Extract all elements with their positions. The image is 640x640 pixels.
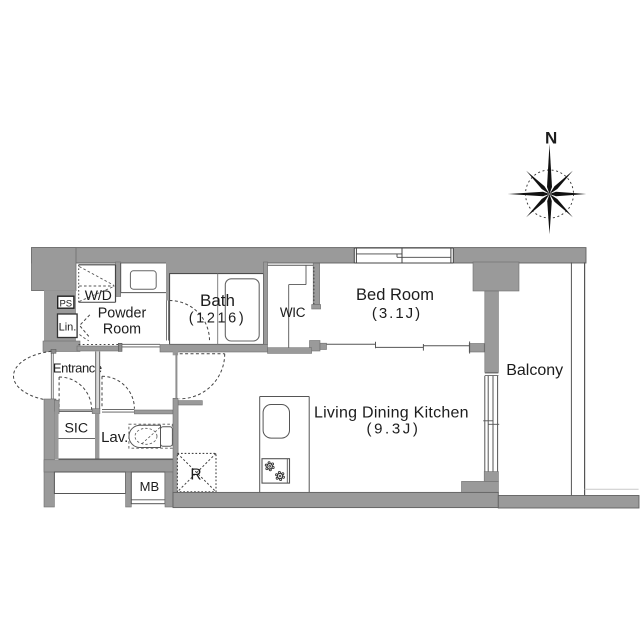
svg-text:Living Dining Kitchen: Living Dining Kitchen (314, 404, 469, 421)
svg-text:W/D: W/D (85, 287, 112, 303)
svg-text:WIC: WIC (280, 305, 306, 320)
svg-text:SIC: SIC (64, 421, 88, 437)
svg-text:Lin.: Lin. (59, 322, 77, 334)
svg-text:PS: PS (59, 298, 72, 309)
svg-text:Entrance: Entrance (53, 360, 102, 375)
svg-text:Bath: Bath (200, 291, 235, 310)
svg-text:Room: Room (103, 322, 141, 338)
svg-text:MB: MB (140, 479, 160, 494)
svg-text:Balcony: Balcony (506, 362, 563, 379)
svg-text:Bed Room: Bed Room (356, 286, 434, 304)
svg-text:(9.3J): (9.3J) (367, 421, 421, 438)
svg-text:(1216): (1216) (189, 311, 247, 327)
svg-text:N: N (545, 129, 557, 148)
svg-text:R: R (190, 467, 201, 484)
svg-text:Lav.: Lav. (101, 429, 128, 446)
svg-text:Powder: Powder (98, 306, 147, 322)
svg-text:(3.1J): (3.1J) (372, 305, 422, 322)
